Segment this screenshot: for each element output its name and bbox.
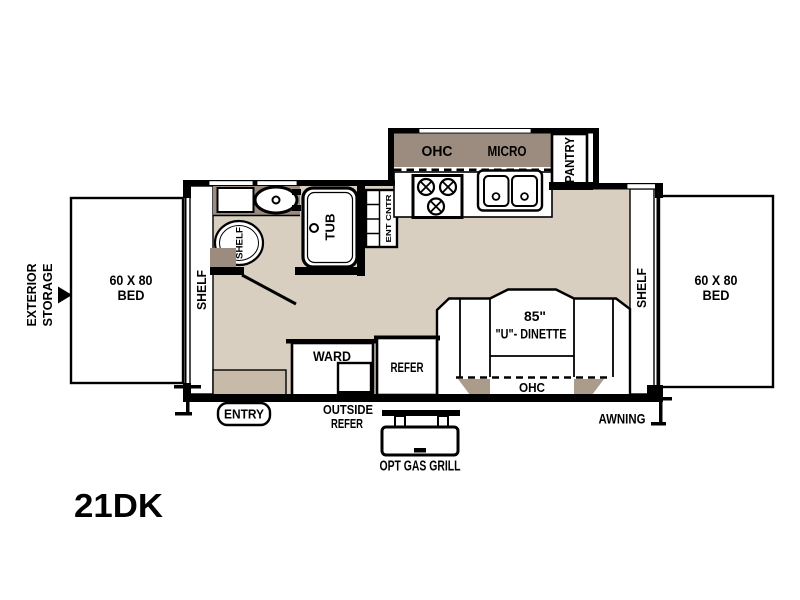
- pantry: PANTRY: [552, 134, 587, 186]
- stove-burner-1: [418, 179, 434, 195]
- exterior-storage-line2: STORAGE: [41, 264, 55, 327]
- grill-post-left: [395, 416, 405, 427]
- entry-callout: ENTRY: [218, 403, 270, 425]
- wall-bathroom-right: [357, 183, 365, 276]
- kitchen-micro-label: MICRO: [488, 144, 527, 160]
- refrigerator: REFER: [374, 336, 440, 396]
- dinette-ohc-label: OHC: [519, 381, 545, 395]
- bathroom-cabinet-block: [210, 248, 236, 268]
- shelf-strip-right-label: SHELF: [635, 268, 649, 308]
- sink-drain-left: [493, 193, 500, 200]
- toilet-hinge-bottom: [292, 205, 301, 211]
- grill-handle: [414, 448, 426, 453]
- kitchen-sink: [478, 171, 542, 211]
- tub-label: TUB: [323, 214, 338, 241]
- shelf-strip-left: SHELF: [190, 186, 213, 394]
- exterior-storage-line1: EXTERIOR: [25, 264, 39, 327]
- bed-right: 60 X 80 BED: [659, 196, 773, 387]
- wall-left-popout-line: [185, 198, 187, 384]
- kitchen-ohc-band: [394, 133, 552, 168]
- entry-label: ENTRY: [224, 408, 265, 422]
- tub-drain: [310, 224, 318, 232]
- gas-grill: OPT GAS GRILL: [380, 410, 461, 475]
- wall-bathroom-bottom-right: [295, 267, 363, 275]
- exterior-storage-callout: EXTERIOR STORAGE: [25, 264, 72, 327]
- wall-right-popout-line: [657, 197, 659, 386]
- wall-right-upper: [655, 183, 663, 198]
- bed-right-label: BED: [703, 288, 730, 303]
- bed-left-size: 60 X 80: [110, 273, 153, 288]
- entry-cabinet-block: [213, 370, 286, 396]
- window-top-right: [627, 184, 657, 189]
- outside-refer-line1: OUTSIDE: [323, 402, 373, 417]
- toilet: [255, 187, 301, 213]
- wall-bottom: [183, 394, 663, 402]
- toilet-drain: [273, 197, 280, 204]
- wall-under-pantry: [549, 182, 593, 190]
- outside-refer-line2: REFER: [331, 416, 363, 431]
- wall-bathroom-bottom-left: [210, 267, 244, 275]
- wall-kitchen-bump-right: [593, 128, 599, 186]
- sink-drain-right: [521, 193, 528, 200]
- floorplan-drawing: 60 X 80 BED 60 X 80 BED EXTERIOR STORAGE…: [0, 0, 800, 600]
- window-kitchen: [419, 129, 531, 133]
- sink-bowl-left: [484, 176, 509, 206]
- u-dinette: 85" "U"- DINETTE OHC: [437, 290, 630, 397]
- sink-bowl-right: [512, 176, 537, 206]
- ent-cabinet-label: ENT CNTR: [386, 195, 393, 243]
- bed-right-size: 60 X 80: [695, 273, 738, 288]
- floorplan-canvas: 60 X 80 BED 60 X 80 BED EXTERIOR STORAGE…: [0, 0, 800, 600]
- ent-cabinet: ENT CNTR: [366, 190, 397, 247]
- stove-burner-2: [440, 179, 456, 195]
- bed-left: 60 X 80 BED: [71, 198, 183, 383]
- shelf-strip-right: SHELF: [630, 189, 654, 394]
- stove-burner-3: [428, 199, 444, 215]
- bathtub: TUB: [303, 188, 357, 267]
- model-number: 21DK: [74, 487, 163, 524]
- dinette-size-label: 85": [524, 309, 546, 324]
- wall-kitchen-bump-left: [388, 128, 394, 186]
- wardrobe: WARD: [286, 339, 377, 396]
- wardrobe-label: WARD: [313, 349, 351, 364]
- awning-label: AWNING: [599, 412, 646, 427]
- stove: [413, 176, 462, 218]
- toilet-hinge-top: [292, 189, 301, 195]
- wall-left-upper: [183, 180, 191, 198]
- grill-post-right: [438, 416, 448, 427]
- shelf-strip-left-label: SHELF: [195, 270, 209, 310]
- refrigerator-label: REFER: [391, 360, 424, 375]
- outside-refer-compartment: [338, 363, 371, 394]
- window-bath-toilet: [257, 181, 297, 186]
- bathroom-vanity: [218, 188, 254, 212]
- pantry-label: PANTRY: [563, 136, 577, 183]
- window-bath-vanity: [209, 181, 253, 186]
- dinette-name-label: "U"- DINETTE: [496, 327, 567, 342]
- bed-left-label: BED: [118, 288, 145, 303]
- kitchen-ohc-label: OHC: [422, 144, 453, 160]
- gas-grill-label: OPT GAS GRILL: [380, 459, 461, 475]
- outside-refer-callout: OUTSIDE REFER: [323, 402, 373, 431]
